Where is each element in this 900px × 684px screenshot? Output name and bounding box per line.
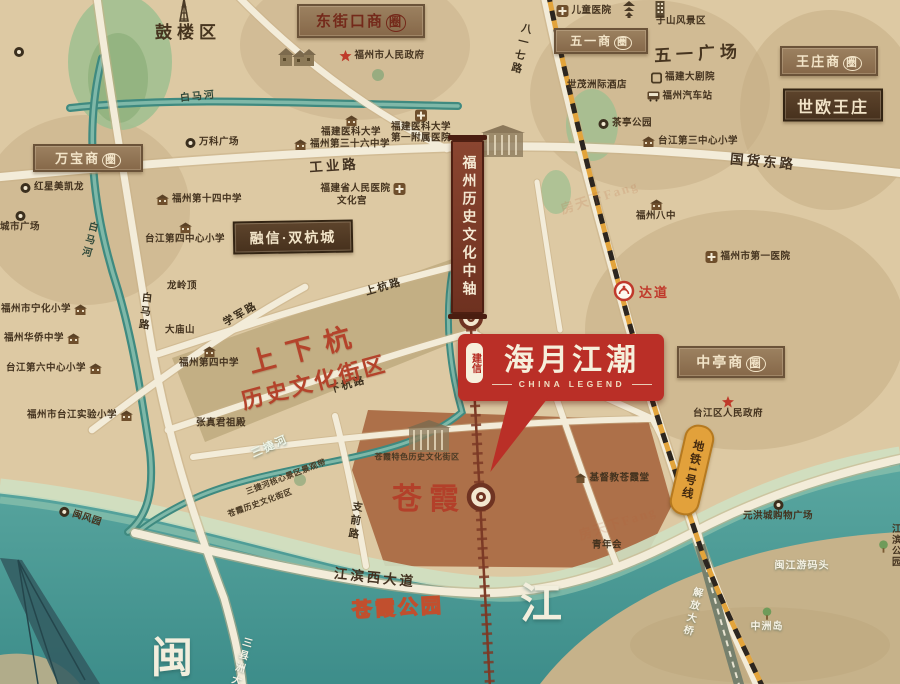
box-wuyi-cbd-label: 五一商圈 (570, 32, 632, 50)
box-rongxin-shuanghangcheng: 融信·双杭城 (233, 219, 354, 254)
real-estate-location-map: 儿童医院于山风景区福州市人民政府世茂洲际酒店福建大剧院福州汽车站茶亭公园台江第三… (0, 0, 900, 684)
project-callout-bubble: 建信 海月江潮 CHINA LEGEND (458, 334, 664, 401)
box-wuyi-cbd: 五一商圈 (554, 28, 648, 54)
box-zhongting-cbd: 中亭商圈 (677, 346, 785, 378)
circled-char: 圈 (102, 153, 121, 168)
map-artwork (0, 0, 900, 684)
developer-seal: 建信 (466, 343, 483, 383)
box-rongxin-shuanghangcheng-label: 融信·双杭城 (249, 226, 336, 248)
box-shiou-wangzhuang-label: 世欧王庄 (797, 93, 869, 117)
box-wangzhuang-cbd-label: 王庄商圈 (796, 51, 862, 71)
box-wanbao-cbd: 万宝商圈 (33, 144, 143, 172)
dadao-metro-station: 达道 (613, 280, 669, 302)
box-zhongting-cbd-label: 中亭商圈 (696, 352, 765, 372)
circled-char: 圈 (614, 36, 632, 50)
subtitle-rule-left (492, 384, 512, 385)
box-wanbao-cbd-label: 万宝商圈 (55, 148, 121, 168)
central-axis-banner: 福州历史文化中轴 (451, 140, 484, 314)
project-subtitle: CHINA LEGEND (488, 379, 656, 389)
box-dongjiekou-cbd-label: 东街口商圈 (316, 10, 406, 31)
circled-char: 圈 (746, 356, 765, 372)
sandbank-texture (630, 607, 890, 683)
metro-station-name: 达道 (639, 282, 669, 301)
box-dongjiekou-cbd: 东街口商圈 (297, 4, 425, 38)
circled-char: 圈 (386, 14, 406, 31)
subtitle-rule-right (632, 384, 652, 385)
project-subtitle-text: CHINA LEGEND (519, 379, 625, 389)
box-wangzhuang-cbd: 王庄商圈 (780, 46, 878, 76)
project-title: 海月江潮 (486, 335, 658, 379)
developer-seal-text: 建信 (470, 353, 480, 373)
fuzhou-metro-logo-icon (613, 280, 635, 302)
circled-char: 圈 (843, 56, 862, 71)
box-shiou-wangzhuang: 世欧王庄 (783, 89, 883, 122)
axis-bullseye-2 (469, 485, 493, 509)
central-axis-banner-label: 福州历史文化中轴 (458, 155, 478, 299)
